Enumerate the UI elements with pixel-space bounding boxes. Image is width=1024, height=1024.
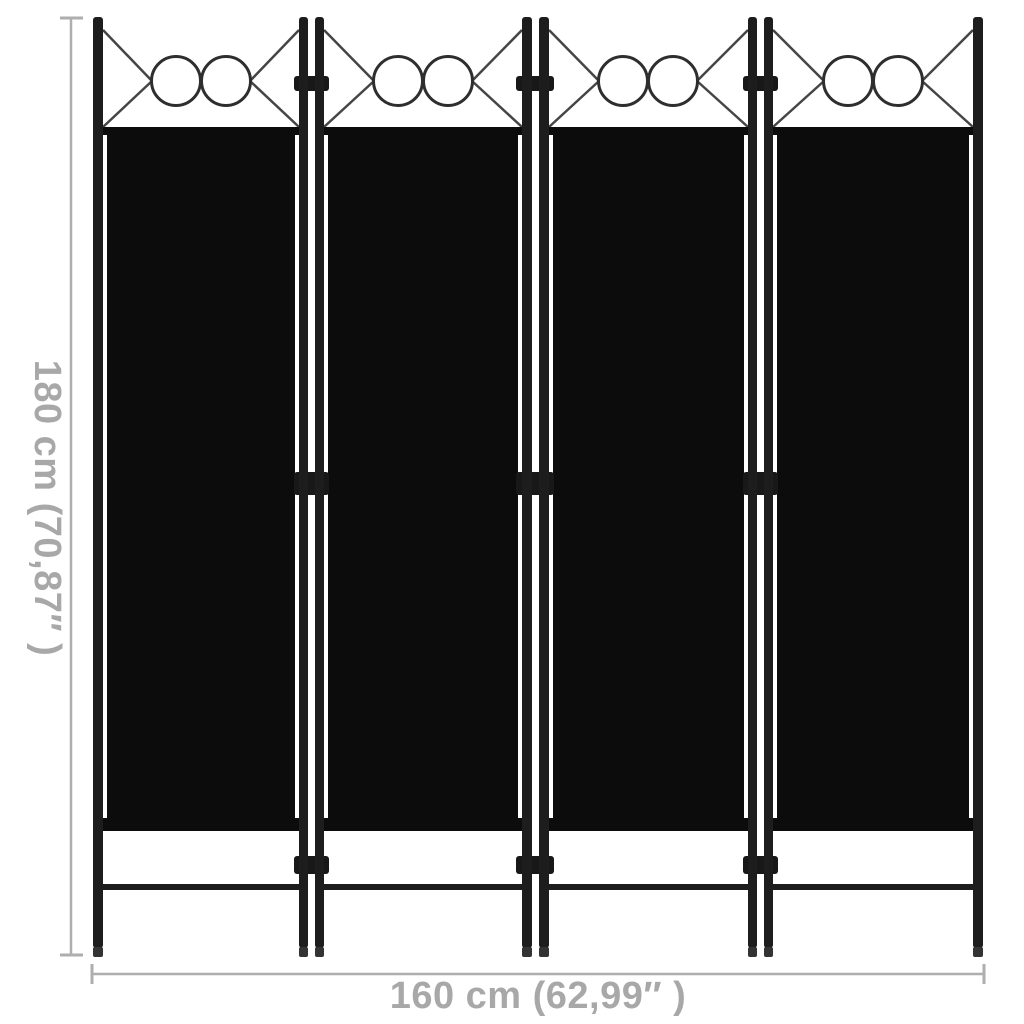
frame-pole [93, 17, 103, 948]
bottom-rail [324, 818, 522, 831]
cross-line [697, 81, 748, 127]
panel-2 [318, 30, 529, 890]
panel-4 [767, 30, 979, 890]
ring-ornament [824, 57, 873, 106]
panel-3 [542, 30, 754, 890]
frame-pole [973, 17, 983, 948]
cross-line [697, 30, 748, 81]
ring-ornament [202, 57, 251, 106]
height-dimension: 180 cm (70,87″ ) [26, 18, 83, 955]
frame-pole [299, 17, 308, 948]
bottom-rail [549, 818, 748, 831]
frame-pole [539, 17, 549, 948]
width-dim-label: 160 cm (62,99″ ) [390, 975, 687, 1017]
ring-ornament [424, 57, 473, 106]
foot-cap [299, 947, 308, 957]
ring-ornament [599, 57, 648, 106]
cross-line [250, 30, 299, 81]
fabric-panel [107, 130, 295, 830]
cross-line [324, 81, 374, 127]
bottom-rail [103, 818, 299, 831]
cross-line [922, 30, 973, 81]
frame-pole [748, 17, 757, 948]
leg-crossbar [542, 884, 754, 890]
frame-pole [764, 17, 773, 948]
cross-line [549, 30, 599, 81]
fabric-panel [777, 130, 969, 830]
foot-cap [764, 947, 773, 957]
cross-line [773, 81, 824, 127]
room-divider-drawing: 180 cm (70,87″ ) 160 cm (62,99″ ) [0, 0, 1024, 1024]
bottom-rail [773, 818, 973, 831]
frame-pole [315, 17, 324, 948]
foot-cap [93, 947, 103, 957]
foot-cap [748, 947, 757, 957]
ring-ornament [152, 57, 201, 106]
ring-ornament [874, 57, 923, 106]
fabric-panel [553, 130, 744, 830]
height-dim-label: 180 cm (70,87″ ) [26, 360, 68, 657]
leg-crossbar [96, 884, 305, 890]
leg-crossbar [767, 884, 979, 890]
foot-cap [539, 947, 549, 957]
cross-line [472, 30, 522, 81]
cross-line [549, 81, 599, 127]
foot-cap [315, 947, 324, 957]
cross-line [250, 81, 299, 127]
ring-ornament [649, 57, 698, 106]
cross-line [773, 30, 824, 81]
cross-line [472, 81, 522, 127]
product-dimension-diagram: 180 cm (70,87″ ) 160 cm (62,99″ ) [0, 0, 1024, 1024]
cross-line [922, 81, 973, 127]
panel-1 [96, 30, 305, 890]
frame-pole [522, 17, 532, 948]
width-dimension: 160 cm (62,99″ ) [92, 964, 984, 1017]
fabric-panel [328, 130, 518, 830]
foot-cap [973, 947, 983, 957]
foot-cap [522, 947, 532, 957]
cross-line [103, 81, 152, 127]
cross-line [324, 30, 374, 81]
ring-ornament [374, 57, 423, 106]
leg-crossbar [318, 884, 529, 890]
cross-line [103, 30, 152, 81]
